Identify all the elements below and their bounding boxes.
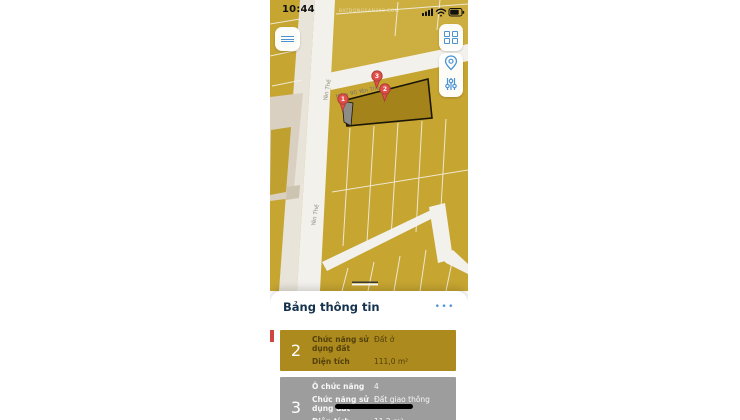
field-value: Đất ở [374, 335, 456, 355]
marker-1-label: 1 [341, 96, 345, 103]
marker-2-label: 2 [383, 86, 387, 93]
table-row[interactable]: 3 Ô chức năng 4 Chức năng sử dụng đất Đấ… [280, 377, 456, 420]
status-time: 10:44 [282, 4, 315, 15]
field-label: Ô chức năng [312, 382, 374, 392]
location-pin-icon [444, 55, 458, 71]
map-building [286, 185, 300, 200]
phone-screen: Yên Thế Yên Thế Hẻm 90 Yên Thế BATDONGSA… [270, 0, 468, 420]
status-icons [422, 4, 465, 23]
hamburger-menu-icon [281, 35, 294, 44]
marker-3-label: 3 [375, 73, 379, 80]
filters-button[interactable] [444, 76, 458, 95]
sliders-icon [444, 77, 458, 91]
wifi-icon [437, 9, 446, 16]
cellular-signal-icon [422, 9, 433, 17]
grid-icon [444, 31, 458, 44]
field-value: 111,0 m² [374, 357, 456, 367]
menu-button[interactable] [275, 27, 300, 51]
sheet-header: Bảng thông tin ••• [270, 291, 468, 320]
row-number: 2 [280, 330, 312, 371]
field-value: 4 [374, 382, 456, 392]
locate-button[interactable] [444, 55, 458, 75]
more-options-button[interactable]: ••• [435, 303, 455, 312]
info-bottom-sheet: Bảng thông tin ••• 2 Chức năng sử dụng đ… [270, 291, 468, 420]
screenshot-root: Yên Thế Yên Thế Hẻm 90 Yên Thế BATDONGSA… [0, 0, 740, 420]
map-tools-group [439, 53, 463, 97]
map-watermark: BATDONGSAN368.COM [339, 8, 399, 14]
field-label: Diện tích [312, 357, 374, 367]
home-indicator[interactable] [335, 404, 413, 409]
battery-icon [449, 9, 464, 17]
layers-button[interactable] [439, 24, 463, 51]
sheet-title: Bảng thông tin [283, 300, 380, 314]
field-label: Chức năng sử dụng đất [312, 335, 374, 355]
row-number: 3 [280, 377, 312, 420]
table-row[interactable]: 2 Chức năng sử dụng đất Đất ở Diện tích … [280, 330, 456, 371]
adjacent-row-red-edge [270, 330, 274, 342]
